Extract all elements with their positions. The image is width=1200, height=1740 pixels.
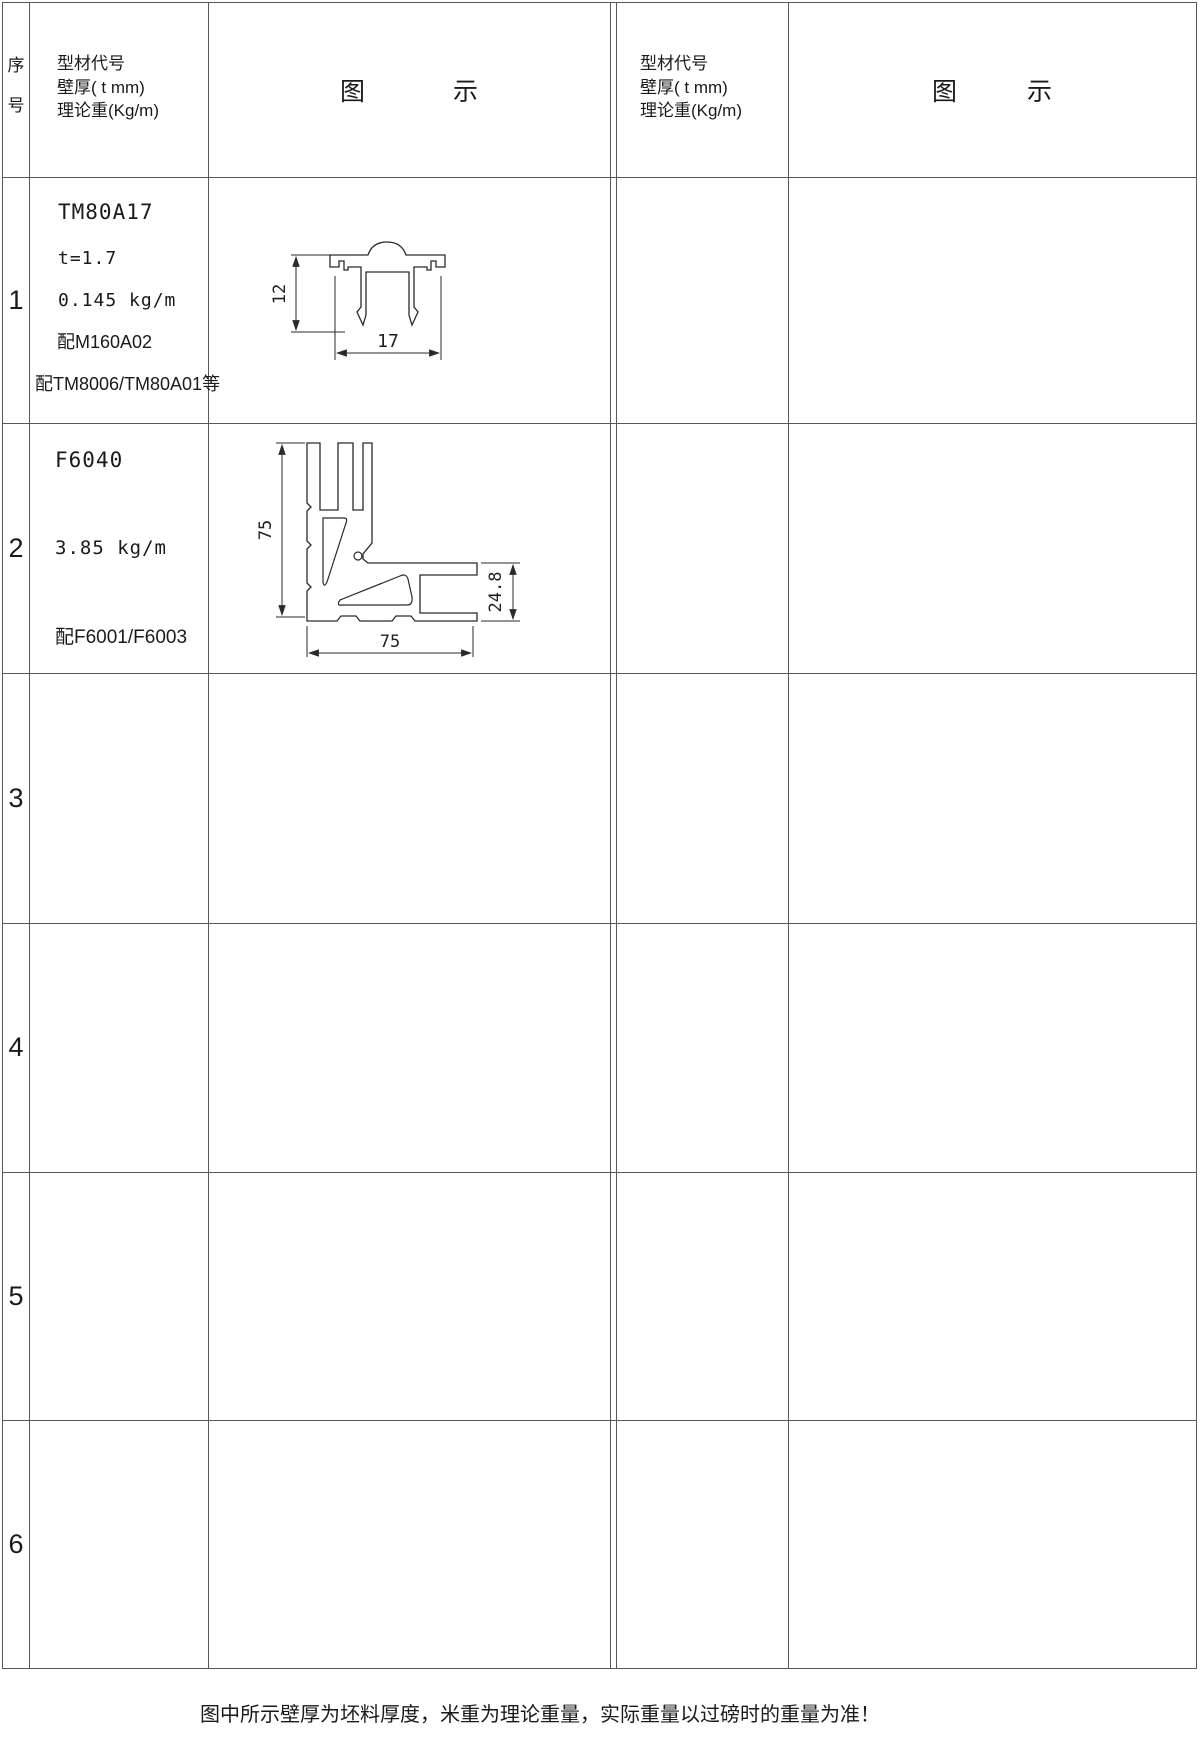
header-diagram-char: 图 xyxy=(932,72,957,108)
profile-weight: 0.145 kg/m xyxy=(58,289,176,311)
header-diagram-char: 示 xyxy=(453,72,478,108)
dim-label-right: 24.8 xyxy=(486,572,506,613)
profile-weight: 3.85 kg/m xyxy=(55,537,167,559)
grid-line xyxy=(208,2,209,1669)
row-number-3: 3 xyxy=(3,673,29,923)
profile-diagram-f6040: 75 75 24.8 xyxy=(250,425,525,665)
right-table-left-border xyxy=(616,2,617,1669)
row-number-2: 2 xyxy=(3,423,29,673)
header-spec-line: 型材代号 xyxy=(640,53,708,75)
header-diagram-char: 示 xyxy=(1027,72,1052,108)
header-spec-line: 壁厚( t mm) xyxy=(57,77,145,99)
profile-code: TM80A17 xyxy=(58,199,154,225)
spec-sheet-page: 序 号 型材代号 壁厚( t mm) 理论重(Kg/m) 图 示 型材代号 壁厚… xyxy=(0,0,1200,1740)
grid-line xyxy=(2,423,1197,424)
lightening-void xyxy=(323,518,347,585)
grid-line xyxy=(788,2,789,1669)
dim-label-height: 12 xyxy=(270,284,290,304)
grid-line xyxy=(2,1420,1197,1421)
grid-line xyxy=(2,923,1197,924)
grid-line xyxy=(2,1668,1197,1669)
row-number-1: 1 xyxy=(3,177,29,423)
lightening-void xyxy=(338,575,412,605)
header-diagram-char: 图 xyxy=(340,72,365,108)
header-spec-line: 理论重(Kg/m) xyxy=(640,100,742,122)
dim-label-width: 17 xyxy=(377,331,399,352)
row-number-5: 5 xyxy=(3,1172,29,1420)
header-spec-line: 型材代号 xyxy=(57,53,125,75)
profile-code: F6040 xyxy=(55,447,123,473)
row-number-6: 6 xyxy=(3,1420,29,1668)
grid-line xyxy=(2,1172,1197,1173)
grid-line xyxy=(2,177,1197,178)
header-seq-char-2: 号 xyxy=(3,94,29,118)
dim-label-left: 75 xyxy=(256,520,276,540)
profile-match: 配M160A02 xyxy=(57,330,152,352)
table-right-border xyxy=(1196,2,1197,1669)
profile-match: 配F6001/F6003 xyxy=(55,624,187,646)
header-diagram-right: 图 示 xyxy=(788,2,1196,177)
profile-diagram-tm80a17: 12 17 xyxy=(265,220,485,385)
left-table-right-border xyxy=(610,2,611,1669)
footer-note: 图中所示壁厚为坯料厚度，米重为理论重量，实际重量以过磅时的重量为准！ xyxy=(0,1698,1080,1726)
header-diagram-left: 图 示 xyxy=(208,2,610,177)
header-seq-char-1: 序 xyxy=(3,54,29,78)
corner-screw-hole xyxy=(354,552,362,560)
profile-thickness: t=1.7 xyxy=(58,247,117,269)
grid-line xyxy=(29,2,30,1669)
profile-outline xyxy=(330,242,445,325)
dim-label-bottom: 75 xyxy=(380,632,400,652)
row-number-4: 4 xyxy=(3,923,29,1172)
profile-outline xyxy=(307,443,477,621)
header-spec-line: 理论重(Kg/m) xyxy=(57,100,159,122)
profile-match: 配TM8006/TM80A01等 xyxy=(35,372,220,394)
grid-line xyxy=(2,673,1197,674)
header-spec-line: 壁厚( t mm) xyxy=(640,77,728,99)
